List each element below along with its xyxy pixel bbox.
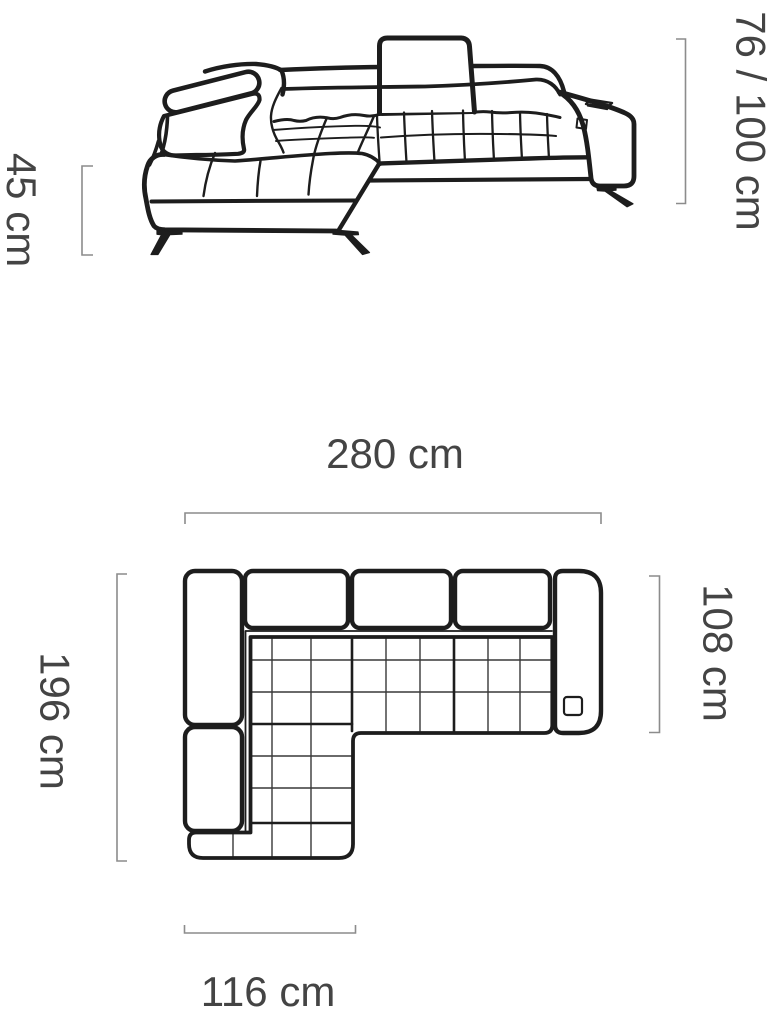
svg-text:76 / 100 cm: 76 / 100 cm (727, 11, 774, 230)
svg-text:45 cm: 45 cm (0, 153, 45, 267)
svg-text:196 cm: 196 cm (31, 652, 78, 790)
svg-text:280 cm: 280 cm (326, 430, 464, 477)
svg-text:116 cm: 116 cm (201, 968, 336, 1015)
svg-text:108 cm: 108 cm (694, 584, 741, 722)
